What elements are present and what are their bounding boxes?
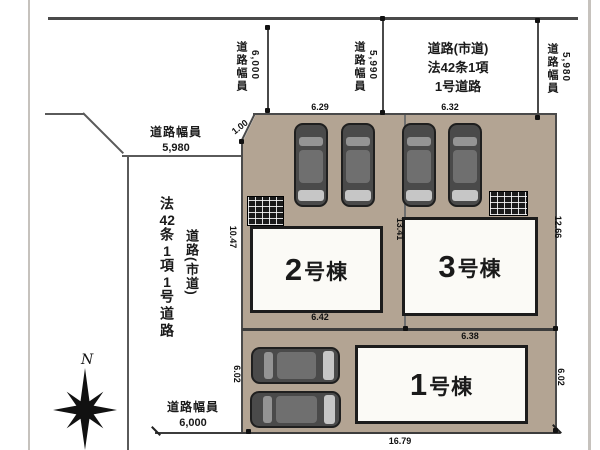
building-2-number: 2 (285, 254, 302, 285)
frame-line-left (28, 0, 30, 450)
left-road-width-label: 道路幅員 6,000 (154, 400, 232, 430)
boundary-dot (553, 326, 558, 331)
dim-west-depth: 10.47 (228, 222, 238, 252)
boundary-dot (553, 428, 558, 433)
boundary-dot (265, 25, 270, 30)
car-icon (294, 123, 328, 207)
measure-line-3 (537, 21, 539, 118)
road-width-label-1: 道路幅員 6,000 (233, 41, 260, 93)
building-3: 3号棟 (402, 217, 538, 316)
car-icon (250, 391, 341, 428)
boundary-dot (380, 16, 385, 21)
top-road-name-line: 法42条1項 (404, 59, 512, 78)
site-plan: 2号棟 3号棟 1号棟 道路(市道) 法42条1項 1号道路 道路幅員 6,00… (0, 0, 600, 450)
boundary-dot (265, 108, 270, 113)
north-label: N (80, 352, 94, 368)
south-boundary-line (155, 432, 560, 434)
building-2-suffix: 号棟 (304, 256, 348, 283)
building-3-number: 3 (438, 251, 455, 282)
boundary-dot (380, 110, 385, 115)
boundary-dot (239, 139, 244, 144)
corner-curb-line (45, 113, 84, 115)
corner-chamfer-line (82, 112, 124, 154)
compass-rose: N (45, 350, 127, 450)
top-road-edge-line (48, 17, 578, 20)
lot-west-boundary (241, 142, 243, 433)
boundary-dot (403, 326, 408, 331)
boundary-dot (246, 429, 251, 434)
measure-line-2 (382, 19, 384, 113)
left-road-name-sub: 道路(市道) (182, 229, 201, 296)
boundary-dot (535, 18, 540, 23)
car-icon (402, 123, 436, 207)
building-2: 2号棟 (250, 226, 383, 313)
car-icon (448, 123, 482, 207)
frame-line-right (588, 0, 591, 450)
top-road-name-line: 道路(市道) (404, 40, 512, 59)
left-road-name: 法42条1項1号道路 (157, 196, 177, 340)
road-width-label-3: 道路幅員 5,980 (544, 43, 571, 95)
dim-lot1-north: 6.38 (450, 331, 490, 341)
compass-cardinal-points (53, 368, 117, 450)
building-1-number: 1 (410, 369, 427, 400)
car-icon (341, 123, 375, 207)
measure-line-1 (267, 28, 269, 112)
porch-grid-icon (247, 196, 284, 226)
dim-lot2-south: 6.42 (300, 312, 340, 322)
porch-grid-icon (489, 191, 528, 216)
top-road-name-line: 1号道路 (404, 78, 512, 97)
top-road-name: 道路(市道) 法42条1項 1号道路 (404, 40, 512, 97)
lot1-north-divider (242, 328, 557, 331)
dim-east-depth: 12.66 (553, 212, 563, 242)
building-1: 1号棟 (355, 345, 528, 424)
building-1-suffix: 号棟 (429, 371, 473, 398)
boundary-dot (535, 115, 540, 120)
building-3-suffix: 号棟 (458, 253, 502, 280)
car-icon (251, 347, 340, 384)
corner-curb-line-2 (122, 155, 241, 157)
dim-top-lot3: 6.32 (430, 102, 470, 112)
corner-road-width-label: 道路幅員 5,980 (139, 125, 213, 155)
left-road-west-edge (127, 156, 129, 450)
dim-top-lot2: 6.29 (300, 102, 340, 112)
dim-lot1-west: 6.02 (232, 359, 242, 389)
road-width-label-2: 道路幅員 5,990 (351, 41, 378, 93)
dim-lot1-east: 6.02 (556, 362, 566, 392)
dim-mid-boundary: 13.41 (395, 214, 405, 244)
dim-south-frontage: 16.79 (378, 436, 422, 446)
